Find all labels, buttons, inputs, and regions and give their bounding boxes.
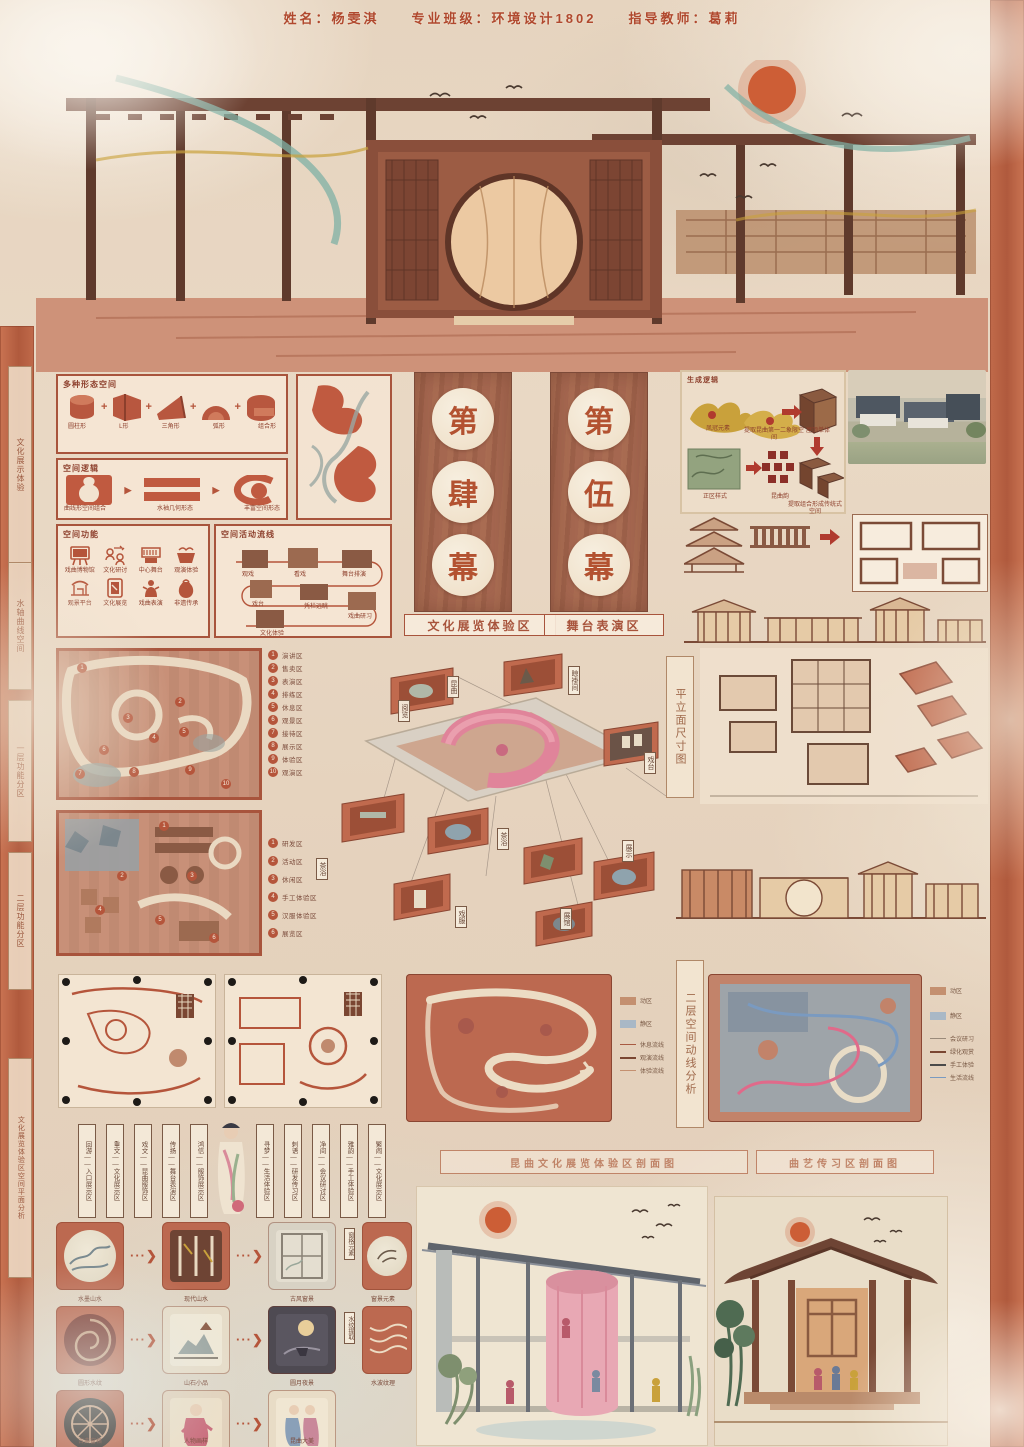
- poster-header: 姓名：杨雯淇 专业班级：环境设计1802 指导教师：葛莉: [0, 8, 1024, 27]
- functions-panel: 空间功能 戏曲博物馆 文化研讨 中心舞台 观演体验 观景平台 文化展览: [56, 524, 210, 638]
- flow-node-label: 文化体验: [260, 631, 284, 638]
- generation-caption: 正区样式: [688, 494, 742, 501]
- arrow-right-icon: ···❯: [130, 1248, 158, 1264]
- axon-tag-text: 展馆: [563, 912, 570, 926]
- plan-marker: [155, 915, 165, 925]
- act-char: 幕: [584, 543, 614, 587]
- function-label: 中心舞台: [139, 568, 163, 575]
- circulation-legend-right: 动区 静区 会议研习 绿化观赏 手工体验 生活流线: [930, 986, 974, 1086]
- flow-panel-title: 空间活动流线: [216, 526, 390, 540]
- legend-zone-label: 静区: [640, 1019, 652, 1028]
- logic-caption: 水袖几何形态: [157, 506, 193, 513]
- axonometric-diagram: [336, 646, 670, 958]
- legend-line: 休息流线: [620, 1040, 664, 1049]
- element-tile: [268, 1222, 336, 1290]
- wedge-shape-icon: [155, 392, 187, 422]
- floor-plan-1: [56, 648, 262, 800]
- zone-strip-text: 回游——入口展示区: [82, 1141, 92, 1201]
- flow-node-label: 观戏: [242, 572, 254, 579]
- function-item: 中心舞台: [135, 544, 167, 575]
- legend-item: 体验区: [268, 754, 303, 764]
- legend-zone: 动区: [620, 996, 664, 1005]
- axon-tag-text: 戏服: [458, 910, 465, 924]
- plan-marker: [159, 821, 169, 831]
- circulation-label: 二层空间动线分析: [676, 960, 704, 1128]
- sidebar-label-text: 一层功能分区: [15, 744, 25, 798]
- design-poster: 姓名：杨雯淇 专业班级：环境设计1802 指导教师：葛莉: [0, 0, 1024, 1447]
- plan-marker: [185, 765, 195, 775]
- sidebar-label-4: 二层功能分区: [8, 852, 32, 990]
- zone-strip: 刺语——研发传习区: [284, 1124, 302, 1218]
- plan-marker: [123, 713, 133, 723]
- generation-panel-title: 生成逻辑: [682, 372, 844, 385]
- plan-marker: [149, 733, 159, 743]
- zone-strip-text: 传扬——舞台表演区: [166, 1141, 176, 1201]
- legend-zone: 静区: [930, 1011, 974, 1020]
- legend-item: 展览区: [268, 928, 317, 938]
- legend-zone-label: 静区: [950, 1011, 962, 1020]
- function-item: 观演体验: [171, 544, 203, 575]
- act5-circle: 第: [568, 388, 630, 450]
- section-caption-text: 昆曲文化展览体验区剖面图: [510, 1155, 678, 1170]
- arrow-right-icon: ···❯: [130, 1416, 158, 1432]
- dims-label-text: 平立面尺寸图: [672, 688, 688, 766]
- arch-shape-icon: [200, 392, 232, 422]
- tile-caption: 圆月夜景: [262, 1378, 342, 1387]
- function-label: 戏曲博物馆: [65, 568, 95, 575]
- logic-panel-title: 空间逻辑: [58, 460, 286, 474]
- dims-label: 平立面尺寸图: [666, 656, 694, 798]
- legend-label: 排练区: [282, 689, 303, 699]
- plan-marker: [75, 769, 85, 779]
- sidebar-label-5: 文化展览体验区空间平面分析: [8, 1058, 32, 1278]
- plan1-markers: [59, 651, 259, 797]
- arrow-right-icon: ···❯: [236, 1248, 264, 1264]
- sidebar-label-2: 水轴曲线空间: [8, 562, 32, 690]
- mirror-frame-icon: [104, 577, 126, 599]
- tile-caption: 水墨山水: [50, 1294, 130, 1303]
- tile-caption: 窗景元素: [348, 1294, 418, 1303]
- act5-caption: 舞台表演区: [544, 614, 664, 636]
- flow-node-label: 凭栏远眺: [304, 604, 328, 611]
- plan-marker: [179, 727, 189, 737]
- plan2-tag-text: 茶浴: [319, 862, 326, 876]
- element-tile: [362, 1222, 412, 1290]
- bowl-icon: [175, 544, 197, 566]
- legend-item: 售卖区: [268, 663, 303, 673]
- tile-caption: 古典窗格: [50, 1436, 130, 1445]
- flow-panel: 空间活动流线 观戏 看戏 舞台排演 戏台 凭栏远眺 戏曲研习 文化体验: [214, 524, 392, 638]
- sleeve-dancer-icon: [298, 376, 390, 516]
- sidebar-label-text: 文化展示体验: [15, 438, 25, 492]
- flow-node-label: 戏曲研习: [348, 614, 372, 621]
- zone-strip: 鸿信——服饰展示区: [190, 1124, 208, 1218]
- plan-marker: [95, 905, 105, 915]
- shape-caption: L形: [119, 424, 128, 431]
- axon-tag-text: 展示: [625, 844, 632, 858]
- opera-performer-icon: [140, 577, 162, 599]
- shapes-panel-title: 多种形态空间: [58, 376, 286, 390]
- function-label: 文化展览: [103, 601, 127, 608]
- zone-strip-text: 繁闹——文化展示区: [372, 1141, 382, 1201]
- plan1-legend: 演讲区 售卖区 表演区 排练区 休息区 观景区 接待区 展示区 体验区 观演区: [268, 650, 303, 777]
- zone-strip: 雅韵——手工体验区: [340, 1124, 358, 1218]
- legend-item: 汉服体验区: [268, 910, 317, 920]
- function-item: 戏曲博物馆: [64, 544, 96, 575]
- legend-line-label: 体验流线: [640, 1066, 664, 1075]
- legend-zone-label: 动区: [640, 996, 652, 1005]
- legend-item: 观景区: [268, 715, 303, 725]
- zone-strip-text: 鸿信——服饰展示区: [194, 1141, 204, 1201]
- zone-strip-text: 重文——文化展示区: [110, 1141, 120, 1201]
- element-tile: [268, 1306, 336, 1374]
- sidebar-label-text: 水轴曲线空间: [15, 599, 25, 653]
- act5-caption-text: 舞台表演区: [566, 617, 641, 634]
- legend-item: 活动区: [268, 856, 317, 866]
- axon-tag-text: 昆曲: [450, 680, 457, 694]
- logic-caption: 曲线形空间组合: [64, 506, 106, 513]
- function-label: 非遗传承: [174, 601, 198, 608]
- legend-label: 观景区: [282, 715, 303, 725]
- legend-zone-label: 动区: [950, 986, 962, 995]
- arrow-right-icon: ···❯: [236, 1332, 264, 1348]
- legend-item: 展示区: [268, 741, 303, 751]
- plus-icon: +: [101, 401, 107, 413]
- tile-caption: 水波纹理: [348, 1378, 418, 1387]
- generation-caption: 屋顶单体: [794, 428, 842, 435]
- tile-tag: 水纹提取: [344, 1312, 355, 1344]
- legend-item: 手工体验区: [268, 892, 317, 902]
- function-label: 文化研讨: [103, 568, 127, 575]
- legend-line-label: 会议研习: [950, 1034, 974, 1043]
- axon-tag-text: 茶浴: [500, 832, 507, 846]
- plus-icon: +: [146, 401, 152, 413]
- pavilion-icon: [69, 577, 91, 599]
- sidebar-label-text: 文化展览体验区空间平面分析: [16, 1116, 25, 1220]
- circulation-legend-mid: 动区 静区 休息流线 观演流线 体验流线: [620, 996, 664, 1079]
- floor-plan-2: [56, 810, 262, 956]
- axon-tag: 戏台: [644, 752, 656, 774]
- function-item: 观景平台: [64, 577, 96, 608]
- act4-circle: 肆: [432, 461, 494, 523]
- section-caption-left: 昆曲文化展览体验区剖面图: [440, 1150, 748, 1174]
- act-char: 第: [584, 397, 614, 441]
- vase-silhouette-icon: [66, 475, 112, 505]
- legend-label: 售卖区: [282, 663, 303, 673]
- legend-line-label: 观演流线: [640, 1053, 664, 1062]
- tile-caption: 现代山水: [156, 1294, 236, 1303]
- axon-tag: 展馆: [560, 908, 572, 930]
- courtyard-plan-thumb: [852, 514, 988, 592]
- legend-line: 体验流线: [620, 1066, 664, 1075]
- zone-strip-text: 戏文——昆曲服饰区: [138, 1141, 148, 1201]
- stage-icon: [140, 544, 162, 566]
- elevation-drawing-1: [684, 592, 986, 646]
- axon-tag: 阅览: [398, 700, 410, 722]
- circulation-diagram-2: [708, 974, 922, 1122]
- tile-tag-text: 水纹提取: [347, 1316, 353, 1340]
- function-label: 观景平台: [68, 601, 92, 608]
- shape-row: + + + +: [58, 390, 286, 424]
- element-tile: [162, 1306, 230, 1374]
- combo-shape-icon: [244, 392, 278, 422]
- generation-panel: 生成逻辑 凤冠元素 提取昆曲第一二象限空间 屋顶单体: [680, 370, 846, 514]
- tile-caption: 山石小品: [156, 1378, 236, 1387]
- tile-caption: 圆形水纹: [50, 1378, 130, 1387]
- cylinder-shape-icon: [66, 392, 98, 422]
- shape-caption: 三角形: [162, 424, 180, 431]
- act-char: 幕: [448, 543, 478, 587]
- legend-label: 接待区: [282, 728, 303, 738]
- flow-node-label: 看戏: [294, 572, 306, 579]
- pouch-icon: [175, 577, 197, 599]
- legend-line: 生活流线: [930, 1073, 974, 1082]
- legend-zone: 动区: [930, 986, 974, 995]
- right-border-band: [990, 0, 1024, 1447]
- plan-marker: [221, 779, 231, 789]
- act4-caption-text: 文化展览体验区: [427, 617, 532, 634]
- zone-strip: 重文——文化展示区: [106, 1124, 124, 1218]
- legend-line-label: 绿化观赏: [950, 1047, 974, 1056]
- tile-tag-text: 窗格元素: [347, 1232, 353, 1256]
- axon-tag: 晾褂间: [568, 666, 580, 695]
- axon-tag-text: 晾褂间: [571, 670, 578, 691]
- detail-plan-1: [58, 974, 216, 1108]
- shapes-panel: 多种形态空间 + + + + 圆柱形 L形 三角形 弧形 组合形: [56, 374, 288, 454]
- plan-marker: [175, 697, 185, 707]
- legend-item: 表演区: [268, 676, 303, 686]
- elevation-drawing-2: [676, 840, 986, 926]
- legend-line-label: 休息流线: [640, 1040, 664, 1049]
- logic-caption: 丰富空间形态: [244, 506, 280, 513]
- tile-caption: 古风窗景: [262, 1294, 342, 1303]
- act4-caption: 文化展览体验区: [404, 614, 556, 636]
- act5-banner: 第 伍 幕: [550, 372, 648, 612]
- sidebar-label-text: 二层功能分区: [15, 894, 25, 948]
- legend-line-label: 手工体验: [950, 1060, 974, 1069]
- flow-node-label: 舞台排演: [342, 572, 366, 579]
- act-char: 伍: [584, 470, 614, 514]
- legend-label: 演讲区: [282, 650, 303, 660]
- zone-strip: 回游——入口展示区: [78, 1124, 96, 1218]
- tile-caption: 昆曲大美: [262, 1436, 342, 1445]
- function-label: 戏曲表演: [139, 601, 163, 608]
- legend-label: 活动区: [282, 856, 303, 866]
- arrow-right-icon: ▶: [213, 485, 220, 496]
- dimension-plan: [700, 648, 988, 804]
- arrow-right-icon: ···❯: [130, 1332, 158, 1348]
- arrow-right-icon: ▶: [125, 485, 132, 496]
- legend-item: 休息区: [268, 702, 303, 712]
- flow-node-label: 戏台: [252, 602, 264, 609]
- legend-label: 展览区: [282, 928, 303, 938]
- axon-tag: 展示: [622, 840, 634, 862]
- zone-strip-text: 寻梦——生活体验区: [260, 1141, 270, 1201]
- legend-label: 汉服体验区: [282, 910, 317, 920]
- legend-line: 手工体验: [930, 1060, 974, 1069]
- legend-label: 研发区: [282, 838, 303, 848]
- legend-label: 表演区: [282, 676, 303, 686]
- axon-tag-text: 戏台: [647, 756, 654, 770]
- generation-diagram: [682, 385, 844, 511]
- section-caption-right: 曲艺传习区剖面图: [756, 1150, 934, 1174]
- zone-strip-text: 刺语——研发传习区: [288, 1141, 298, 1201]
- easel-board-icon: [69, 544, 91, 566]
- circulation-diagram-1: [406, 974, 612, 1122]
- zone-strip: 传扬——舞台表演区: [162, 1124, 180, 1218]
- legend-item: 演讲区: [268, 650, 303, 660]
- pavilion-illustration: [36, 60, 988, 372]
- function-item: 文化研讨: [100, 544, 132, 575]
- section-perspective-right: [714, 1196, 948, 1446]
- section-perspective-center: [416, 1186, 708, 1446]
- legend-item: 接待区: [268, 728, 303, 738]
- plan2-tag: 茶浴: [316, 858, 328, 880]
- function-item: 文化展览: [100, 577, 132, 608]
- tile-tag: 窗格元素: [344, 1228, 355, 1260]
- logic-panel: 空间逻辑 ▶ ▶ 曲线形空间组合 水袖几何形态 丰富空间形态: [56, 458, 288, 520]
- plan2-legend: 研发区 活动区 休闲区 手工体验区 汉服体验区 展览区: [268, 838, 317, 938]
- circulation-label-text: 二层空间动线分析: [682, 992, 698, 1096]
- zone-strip: 繁闹——文化展示区: [368, 1124, 386, 1218]
- legend-item: 排练区: [268, 689, 303, 699]
- legend-label: 观演区: [282, 767, 303, 777]
- act5-circle: 幕: [568, 534, 630, 596]
- legend-line: 绿化观赏: [930, 1047, 974, 1056]
- bars-diagram-icon: [144, 477, 200, 503]
- legend-line: 观演流线: [620, 1053, 664, 1062]
- legend-label: 展示区: [282, 741, 303, 751]
- plan-marker: [99, 745, 109, 755]
- functions-panel-title: 空间功能: [58, 526, 208, 540]
- sidebar-label-3: 一层功能分区: [8, 700, 32, 842]
- people-exchange-icon: [104, 544, 126, 566]
- shape-caption: 圆柱形: [68, 424, 86, 431]
- function-item: 非遗传承: [171, 577, 203, 608]
- legend-item: 休闲区: [268, 874, 317, 884]
- function-item: 戏曲表演: [135, 577, 167, 608]
- site-render-image: [848, 370, 986, 464]
- axon-tag: 戏服: [455, 906, 467, 928]
- shape-caption: 组合形: [258, 424, 276, 431]
- zone-strip-text: 净间——会议研讨区: [316, 1141, 326, 1201]
- act4-banner: 第 肆 幕: [414, 372, 512, 612]
- shape-caption: 弧形: [213, 424, 225, 431]
- axon-tag-text: 阅览: [401, 704, 408, 718]
- act5-circle: 伍: [568, 461, 630, 523]
- axon-tag: 茶浴: [497, 828, 509, 850]
- sleeve-motif-panel: [296, 374, 392, 520]
- act-char: 肆: [448, 470, 478, 514]
- legend-label: 休闲区: [282, 874, 303, 884]
- tile-caption: 人物画样: [156, 1436, 236, 1445]
- legend-item: 研发区: [268, 838, 317, 848]
- plan-marker: [187, 871, 197, 881]
- legend-label: 休息区: [282, 702, 303, 712]
- generation-caption: 凤冠元素: [688, 426, 748, 433]
- generation-caption: 昆曲韵: [762, 494, 798, 501]
- sidebar-label-1: 文化展示体验: [8, 366, 32, 564]
- legend-label: 手工体验区: [282, 892, 317, 902]
- element-tile: [362, 1306, 412, 1374]
- legend-zone: 静区: [620, 1019, 664, 1028]
- zone-strip: 戏文——昆曲服饰区: [134, 1124, 152, 1218]
- act4-circle: 幕: [432, 534, 494, 596]
- legend-item: 观演区: [268, 767, 303, 777]
- arrow-right-icon: ···❯: [236, 1416, 264, 1432]
- legend-label: 体验区: [282, 754, 303, 764]
- folded-shape-icon: [111, 392, 143, 422]
- act-char: 第: [448, 397, 478, 441]
- plan-marker: [129, 767, 139, 777]
- zone-strip: 寻梦——生活体验区: [256, 1124, 274, 1218]
- opera-figure-illustration: [212, 1120, 250, 1218]
- element-tile: [56, 1222, 124, 1290]
- plan-marker: [209, 933, 219, 943]
- axon-tag: 昆曲: [447, 676, 459, 698]
- function-label: 观演体验: [174, 568, 198, 575]
- section-caption-text: 曲艺传习区剖面图: [789, 1155, 901, 1170]
- detail-plan-2: [224, 974, 382, 1108]
- plan-marker: [77, 663, 87, 673]
- plan-marker: [117, 871, 127, 881]
- plus-icon: +: [235, 401, 241, 413]
- act4-circle: 第: [432, 388, 494, 450]
- element-tile: [162, 1222, 230, 1290]
- legend-line-label: 生活流线: [950, 1073, 974, 1082]
- zone-strip-text: 雅韵——手工体验区: [344, 1141, 354, 1201]
- plus-icon: +: [190, 401, 196, 413]
- legend-line: 会议研习: [930, 1034, 974, 1043]
- zone-strip: 净间——会议研讨区: [312, 1124, 330, 1218]
- spiral-space-icon: [232, 475, 278, 505]
- element-tile: [56, 1306, 124, 1374]
